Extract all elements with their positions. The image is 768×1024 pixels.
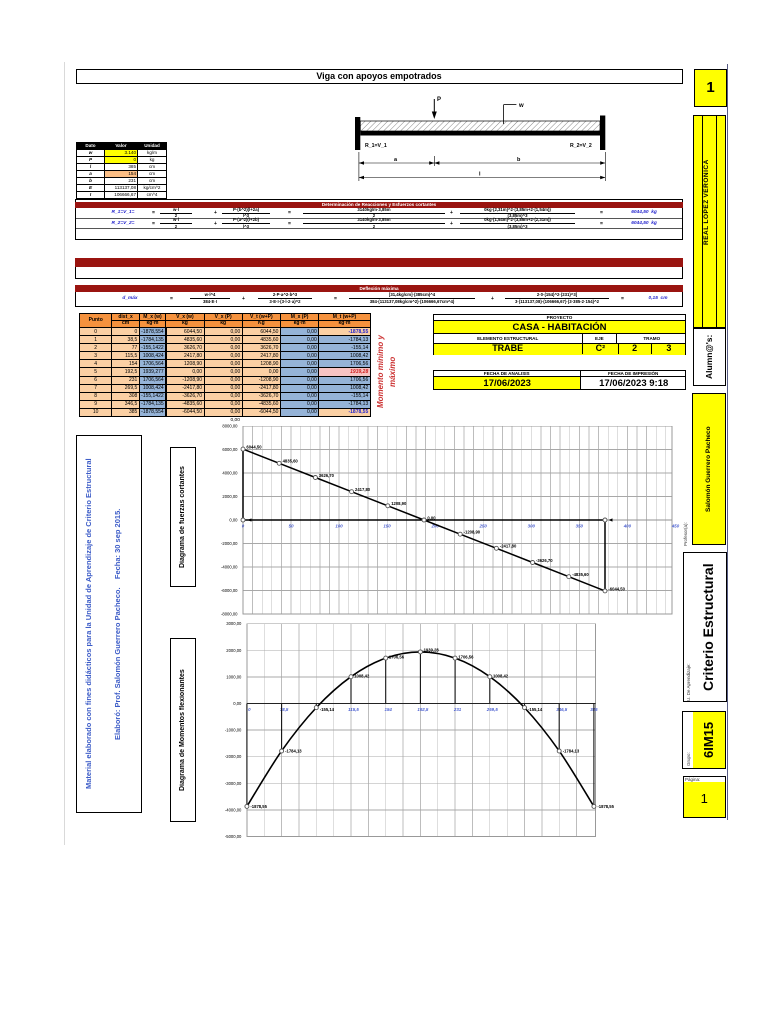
svg-text:6000,00: 6000,00 [222, 447, 238, 452]
svg-text:w: w [518, 103, 524, 109]
svg-text:-6000,00: -6000,00 [221, 588, 238, 593]
svg-text:-5000,00: -5000,00 [225, 834, 242, 839]
svg-text:-4835,60: -4835,60 [572, 572, 589, 577]
svg-text:-1878,55: -1878,55 [597, 804, 614, 809]
svg-text:1000,00: 1000,00 [226, 674, 242, 679]
svg-text:2417,80: 2417,80 [355, 487, 371, 492]
svg-text:-1878,55: -1878,55 [250, 804, 267, 809]
svg-text:l: l [479, 172, 481, 178]
svg-text:1008,42: 1008,42 [354, 674, 370, 679]
svg-text:-4000,00: -4000,00 [221, 564, 238, 569]
svg-text:192,5: 192,5 [417, 707, 429, 712]
svg-text:-1000,00: -1000,00 [225, 728, 242, 733]
svg-text:1008,42: 1008,42 [493, 674, 509, 679]
svg-text:231: 231 [453, 707, 462, 712]
svg-text:6044,50: 6044,50 [246, 445, 262, 450]
svg-text:1706,56: 1706,56 [389, 655, 405, 660]
svg-text:-2000,00: -2000,00 [221, 541, 238, 546]
svg-text:0: 0 [242, 524, 245, 529]
svg-text:-2417,80: -2417,80 [500, 544, 517, 549]
svg-text:-155,14: -155,14 [528, 707, 543, 712]
svg-text:450: 450 [671, 524, 680, 529]
svg-text:-1208,90: -1208,90 [464, 530, 481, 535]
svg-text:115,5: 115,5 [348, 707, 359, 712]
svg-text:0,00: 0,00 [229, 518, 238, 523]
svg-text:R_1=V_1: R_1=V_1 [365, 143, 387, 149]
svg-text:4000,00: 4000,00 [222, 471, 238, 476]
svg-text:154: 154 [385, 707, 393, 712]
svg-text:R_2=V_2: R_2=V_2 [570, 143, 592, 149]
svg-text:-4000,00: -4000,00 [225, 807, 242, 812]
svg-text:a: a [394, 157, 398, 163]
svg-text:P: P [437, 97, 441, 103]
svg-text:1939,28: 1939,28 [424, 647, 440, 652]
svg-text:2000,00: 2000,00 [226, 648, 242, 653]
svg-text:350: 350 [576, 524, 584, 529]
svg-text:2000,00: 2000,00 [222, 494, 238, 499]
svg-text:1208,90: 1208,90 [391, 501, 407, 506]
svg-text:4835,60: 4835,60 [283, 459, 299, 464]
svg-text:269,5: 269,5 [486, 707, 499, 712]
svg-text:346,5: 346,5 [556, 707, 568, 712]
svg-text:0,00: 0,00 [233, 701, 242, 706]
svg-text:50: 50 [289, 524, 294, 529]
svg-text:3626,70: 3626,70 [319, 473, 335, 478]
svg-text:1706,56: 1706,56 [458, 655, 474, 660]
svg-text:-155,14: -155,14 [320, 707, 335, 712]
svg-text:0,00: 0,00 [427, 515, 436, 520]
svg-text:-1784,13: -1784,13 [563, 749, 580, 754]
svg-text:-1784,13: -1784,13 [285, 749, 302, 754]
svg-text:300: 300 [528, 524, 536, 529]
svg-text:8000,00: 8000,00 [222, 424, 238, 429]
svg-text:-2000,00: -2000,00 [225, 754, 242, 759]
svg-text:3000,00: 3000,00 [226, 621, 242, 626]
svg-text:100: 100 [335, 524, 343, 529]
svg-text:b: b [517, 157, 521, 163]
svg-text:150: 150 [383, 524, 391, 529]
svg-text:-6044,50: -6044,50 [608, 586, 625, 591]
svg-text:0: 0 [248, 707, 251, 712]
svg-text:250: 250 [479, 524, 488, 529]
svg-text:-3000,00: -3000,00 [225, 781, 242, 786]
svg-text:-3626,70: -3626,70 [536, 558, 553, 563]
svg-text:400: 400 [623, 524, 632, 529]
